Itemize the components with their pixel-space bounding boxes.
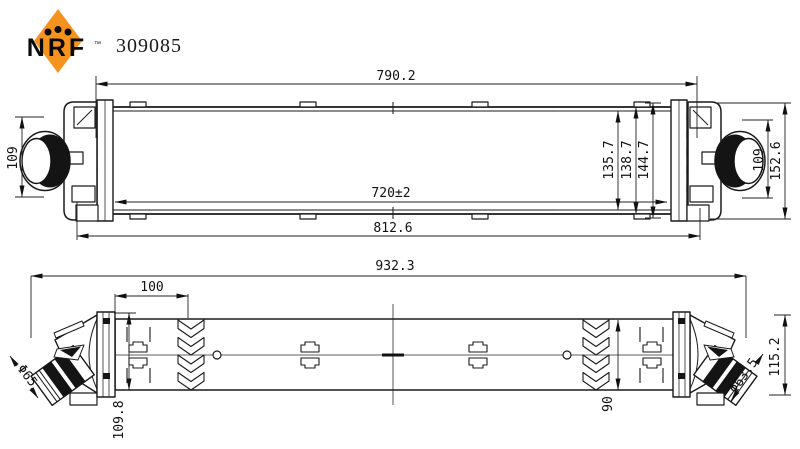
drawing-page: NRF ™ 309085 xyxy=(0,0,800,449)
nrf-logo-dot xyxy=(55,26,62,33)
svg-text:115.2: 115.2 xyxy=(768,337,783,376)
dim-right-depth: 115.2 xyxy=(768,315,791,395)
left-tank-foot xyxy=(76,205,98,221)
part-number: 309085 xyxy=(116,35,182,58)
left-tank-bracket xyxy=(72,186,95,202)
right-foot-plan xyxy=(697,393,724,405)
brand-text: NRF xyxy=(27,34,87,62)
mount-hole xyxy=(213,351,221,359)
nrf-logo: NRF ™ xyxy=(8,4,108,78)
svg-text:812.6: 812.6 xyxy=(373,221,412,236)
svg-text:90: 90 xyxy=(601,396,616,412)
core-front xyxy=(100,102,688,219)
svg-text:932.3: 932.3 xyxy=(375,259,414,274)
dim-mount-offset: 100 xyxy=(115,280,188,318)
svg-text:Φ65: Φ65 xyxy=(14,362,40,390)
svg-text:790.2: 790.2 xyxy=(376,69,415,84)
dim-left-hose-diameter: Φ65 xyxy=(10,356,40,398)
left-port-opening xyxy=(22,139,51,184)
left-foot-plan xyxy=(70,393,97,405)
mount-hole xyxy=(563,351,571,359)
left-hose-port xyxy=(20,132,70,191)
left-plate-plan xyxy=(97,312,115,397)
extension-lines xyxy=(115,294,188,318)
svg-text:109: 109 xyxy=(6,146,21,169)
right-tank-plan xyxy=(673,312,757,405)
svg-text:144.7: 144.7 xyxy=(637,140,652,179)
svg-text:152.6: 152.6 xyxy=(769,141,784,180)
left-tank-plan xyxy=(31,312,115,405)
svg-text:109.8: 109.8 xyxy=(112,400,127,439)
left-tank-boss xyxy=(69,152,83,164)
svg-text:100: 100 xyxy=(140,280,163,295)
svg-text:720±2: 720±2 xyxy=(371,186,410,201)
right-plate-plan xyxy=(673,312,690,397)
svg-text:135.7: 135.7 xyxy=(602,140,617,179)
left-end-tank xyxy=(20,102,98,221)
trademark-symbol: ™ xyxy=(94,41,101,48)
bottom-view-drawing: 932.3 100 109.8 90 115.2 xyxy=(10,259,791,440)
top-view-drawing: 790.2 720±2 812.6 135.7 138.7 xyxy=(6,69,791,240)
right-tank-foot xyxy=(687,205,709,221)
core-plan xyxy=(95,304,695,405)
right-tank-boss xyxy=(702,152,716,164)
svg-text:138.7: 138.7 xyxy=(620,140,635,179)
right-tank-bracket xyxy=(690,186,713,202)
svg-text:109: 109 xyxy=(752,148,767,171)
title-block: NRF ™ 309085 xyxy=(8,4,182,78)
